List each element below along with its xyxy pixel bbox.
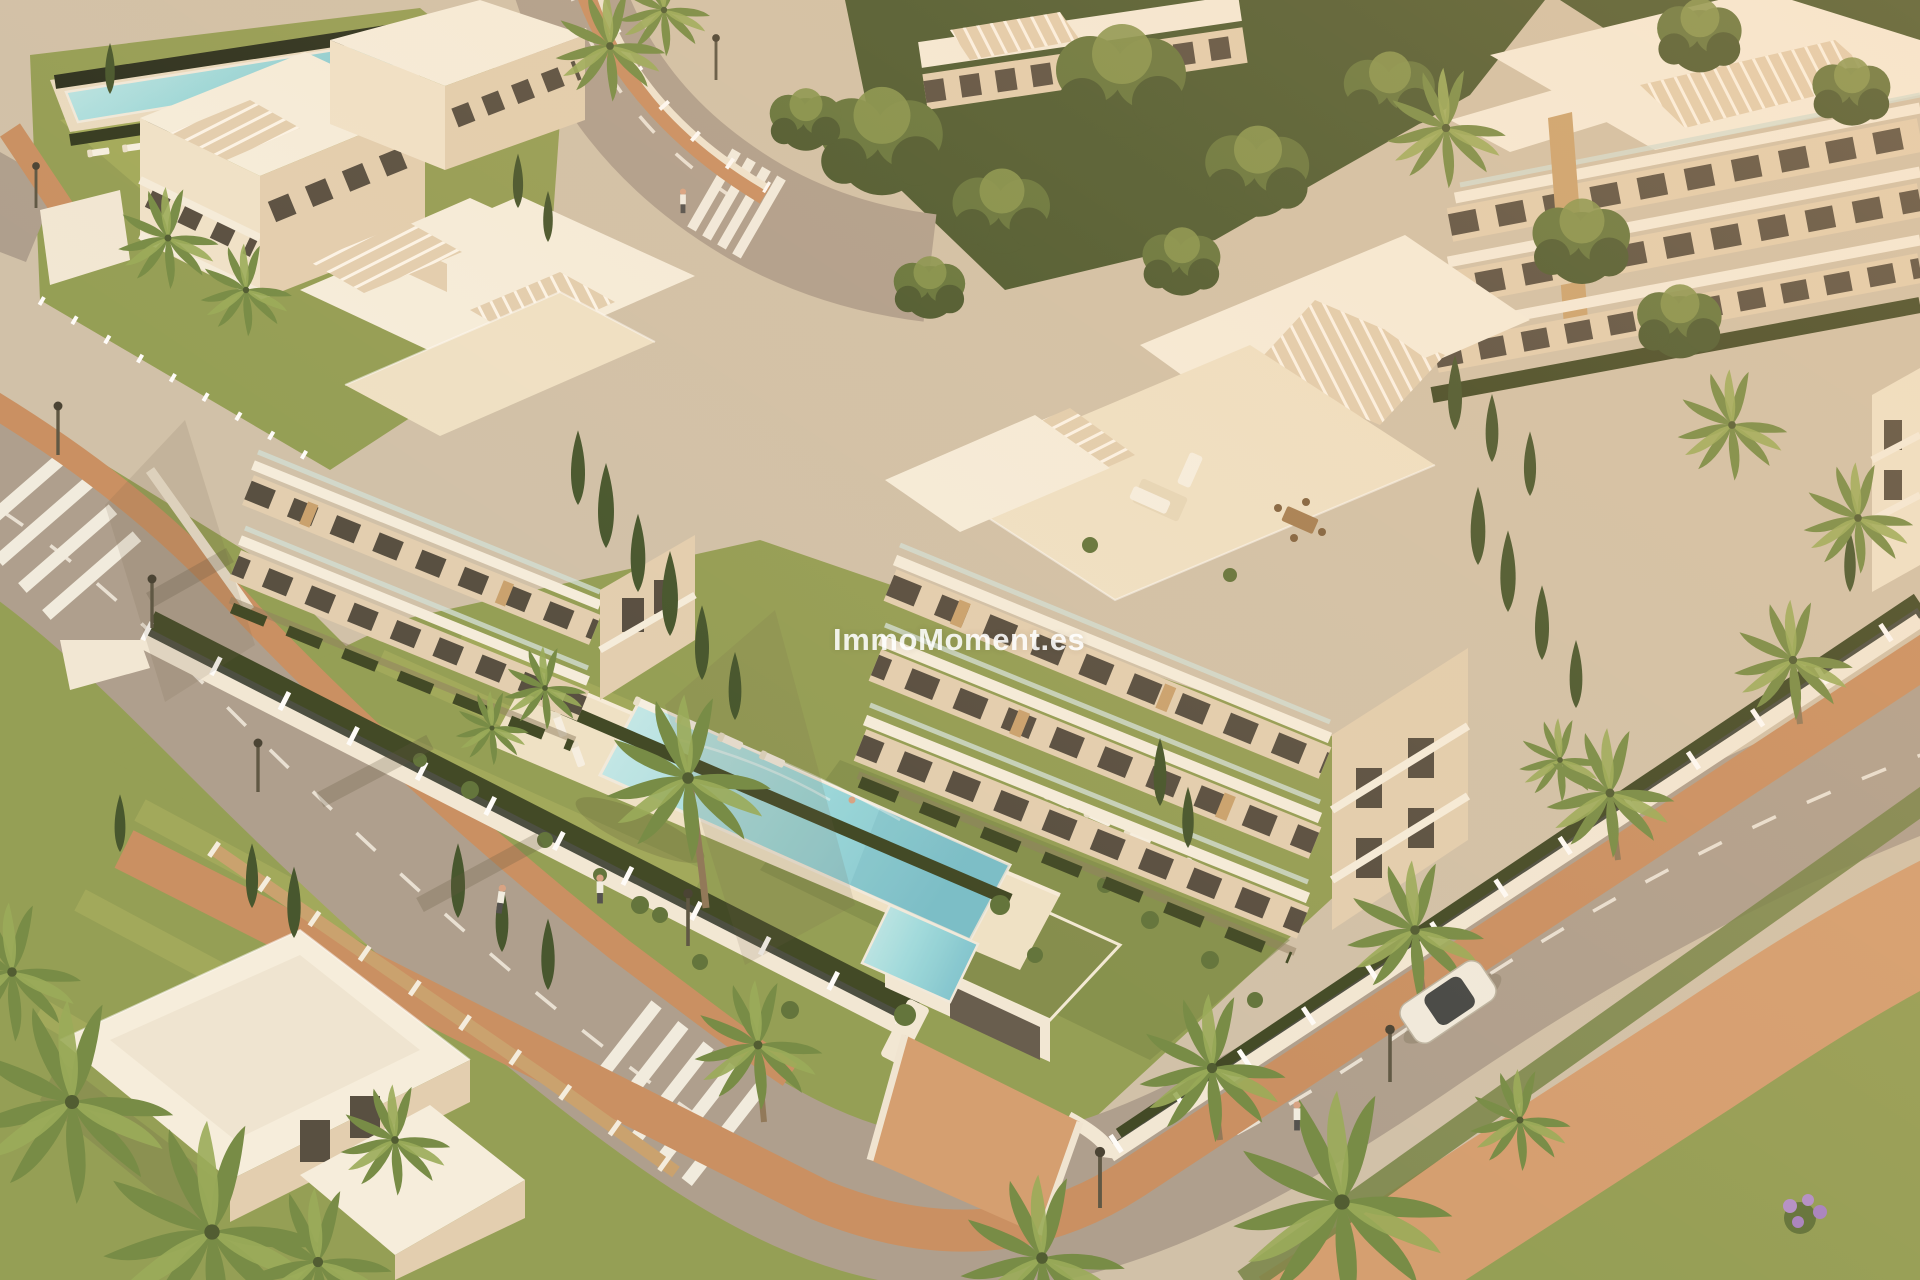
- watermark: ImmoMoment.es: [833, 622, 1085, 658]
- aerial-property-render: ImmoMoment.es: [0, 0, 1920, 1280]
